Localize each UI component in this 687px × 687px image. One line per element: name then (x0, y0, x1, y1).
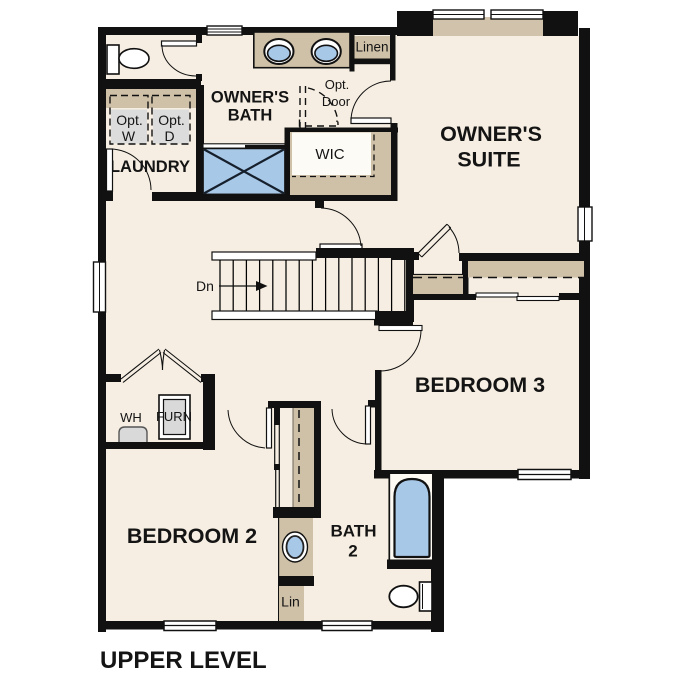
svg-text:WIC: WIC (315, 146, 344, 163)
svg-text:Linen: Linen (355, 40, 388, 55)
svg-text:BATH: BATH (331, 522, 377, 541)
svg-text:BEDROOM 2: BEDROOM 2 (127, 524, 257, 548)
svg-text:BEDROOM 3: BEDROOM 3 (415, 373, 545, 397)
svg-text:Lin: Lin (281, 594, 300, 610)
svg-text:WH: WH (120, 410, 142, 425)
svg-text:W: W (122, 128, 136, 144)
svg-text:BATH: BATH (228, 107, 273, 125)
svg-text:OWNER'S: OWNER'S (211, 89, 289, 107)
svg-text:UPPER LEVEL: UPPER LEVEL (100, 647, 267, 674)
svg-text:Door: Door (322, 94, 351, 109)
svg-text:Opt.: Opt. (158, 112, 184, 128)
svg-text:FURN: FURN (156, 409, 192, 424)
svg-text:LAUNDRY: LAUNDRY (110, 158, 190, 176)
svg-text:D: D (164, 128, 174, 144)
svg-text:Opt.: Opt. (116, 112, 142, 128)
svg-text:2: 2 (348, 542, 357, 561)
svg-text:SUITE: SUITE (457, 148, 520, 172)
svg-text:Dn: Dn (196, 278, 214, 294)
svg-text:OWNER'S: OWNER'S (440, 122, 542, 146)
svg-text:Opt.: Opt. (325, 77, 350, 92)
